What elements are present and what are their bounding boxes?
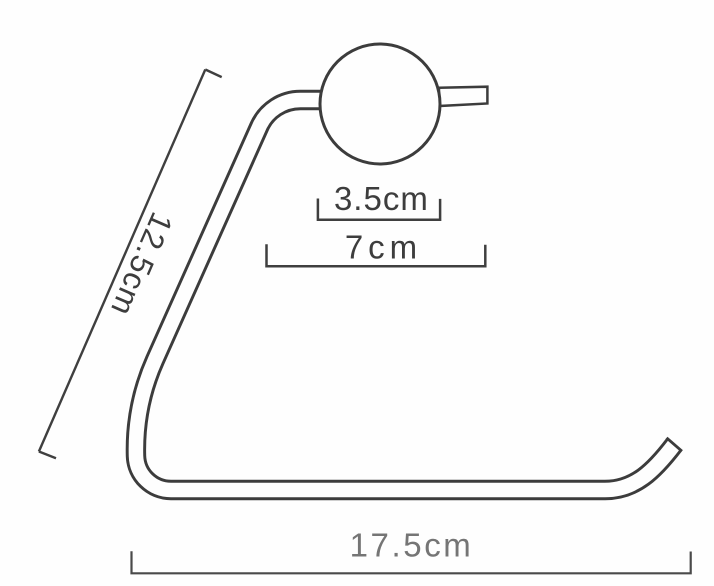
svg-text:17.5cm: 17.5cm — [350, 527, 474, 564]
svg-text:7cm: 7cm — [345, 229, 422, 266]
svg-text:3.5cm: 3.5cm — [334, 180, 429, 217]
